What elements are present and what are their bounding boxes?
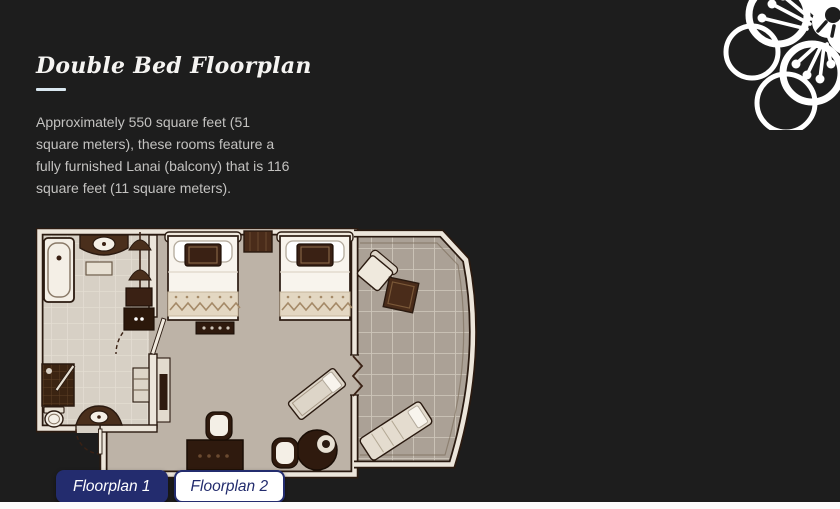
- floorplan-1-button[interactable]: Floorplan 1: [56, 470, 168, 503]
- description-line: square meters), these rooms feature a: [36, 133, 336, 155]
- next-section-edge: [0, 502, 840, 509]
- title-divider: [36, 88, 66, 91]
- page-title: Double Bed Floorplan: [36, 53, 312, 79]
- floorplan-2-button[interactable]: Floorplan 2: [174, 470, 286, 503]
- room-description: Approximately 550 square feet (51 square…: [36, 111, 336, 199]
- floorplan-image: [36, 228, 487, 481]
- floorplan-tabs: Floorplan 1 Floorplan 2: [56, 470, 285, 503]
- description-line: Approximately 550 square feet (51: [36, 111, 336, 133]
- description-line: square feet (11 square meters).: [36, 177, 336, 199]
- page-root: { "header": { "title": "Double Bed Floor…: [0, 0, 840, 509]
- plum-blossom-ornament-icon: [690, 0, 840, 130]
- description-line: fully furnished Lanai (balcony) that is …: [36, 155, 336, 177]
